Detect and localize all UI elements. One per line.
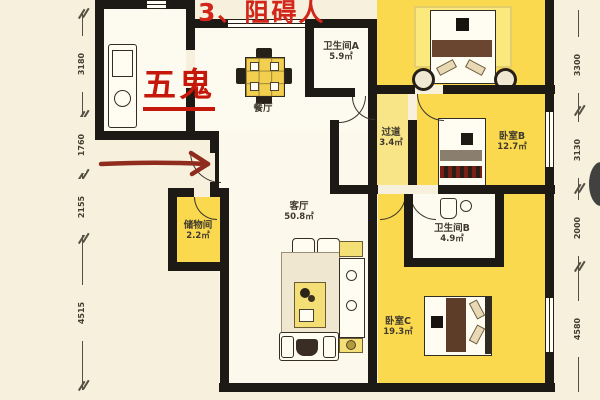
dining-plate (250, 82, 259, 91)
room-area: 12.7㎡ (486, 143, 538, 153)
living-plant-leaf (308, 295, 315, 302)
bath-b-toilet (440, 198, 457, 219)
bedroom-b-wardrobe-shelf (440, 150, 482, 161)
bedroom-a-bed-tv (456, 18, 469, 31)
bedroom-a-bed-blanket (432, 40, 492, 57)
dimension-value: 3300 (574, 37, 582, 93)
dimension-value: 4515 (78, 285, 86, 341)
living-sofa-arm (281, 336, 294, 358)
room-label-living: 客厅 50.8㎡ (272, 202, 326, 223)
kitchen-burner (114, 90, 131, 107)
room-label-corridor: 过道 3.4㎡ (369, 128, 413, 149)
wall (404, 194, 413, 267)
kitchen-window (147, 0, 166, 9)
dimension-value: 3180 (78, 36, 86, 92)
wall (186, 0, 195, 50)
room-area: 4.9㎡ (424, 235, 480, 245)
wall (438, 185, 555, 194)
dimension-value: 2000 (574, 200, 582, 256)
living-side-table (339, 241, 363, 257)
wall (219, 383, 555, 392)
bath-b-sink (460, 200, 472, 212)
wugui-annotation-text: 五鬼 (143, 58, 215, 111)
kitchen-sink (112, 50, 133, 77)
room-area: 3.4㎡ (369, 139, 413, 149)
wall (330, 120, 339, 185)
room-label-bath-b: 卫生间B 4.9㎡ (424, 224, 480, 245)
room-label-storage: 储物间 2.2㎡ (174, 221, 222, 242)
bedroom-b-dresser (440, 166, 482, 178)
room-area: 5.9㎡ (314, 53, 368, 63)
dimension-value: 3130 (574, 122, 582, 178)
bedroom-c-bed-blanket (446, 298, 466, 352)
wall (404, 258, 504, 267)
living-sofa-seat (296, 339, 318, 356)
room-label-bedroom-b: 卧室B 12.7㎡ (486, 132, 538, 153)
room-area: 50.8㎡ (272, 213, 326, 223)
bedroom-a-nightstand (412, 68, 435, 91)
living-sofa-arm (323, 336, 336, 358)
bedroom-b-wardrobe-tv (461, 133, 473, 145)
red-arrow-icon (95, 148, 223, 182)
room-name: 餐厅 (240, 104, 286, 115)
dimension-value: 2155 (78, 179, 86, 235)
dimension-value: 1760 (78, 117, 86, 173)
wall (95, 0, 104, 140)
living-cabinet-knob (346, 300, 357, 311)
living-cabinet-knob (346, 270, 357, 281)
room-label-bedroom-c: 卧室C 19.3㎡ (372, 317, 424, 338)
edge-artifact (589, 162, 600, 206)
wall (443, 85, 555, 94)
wall (330, 185, 378, 194)
wall (377, 85, 415, 94)
room-area: 2.2㎡ (174, 232, 222, 242)
wall (220, 188, 229, 388)
dimension-value: 4580 (574, 301, 582, 357)
dining-plate (270, 62, 279, 71)
bedroom-c-bed-tv (431, 316, 443, 328)
bedroom-c-window (545, 298, 554, 352)
dining-plate (270, 82, 279, 91)
wall (305, 19, 314, 97)
room-label-bath-a: 卫生间A 5.9㎡ (314, 42, 368, 63)
room-label-dining: 餐厅 (240, 104, 286, 115)
room-area: 19.3㎡ (372, 328, 424, 338)
bedroom-c-headboard (485, 296, 491, 354)
living-art-frame (299, 309, 314, 322)
bedroom-b-window (545, 112, 554, 167)
dining-plate (250, 62, 259, 71)
floor-plan-canvas: 卫生间A 5.9㎡ 餐厅 过道 3.4㎡ 卧室B 12.7㎡ 卫生间B 4.9㎡… (0, 0, 600, 400)
wall (95, 131, 219, 140)
wall (495, 194, 504, 267)
living-side-table-bowl (346, 340, 356, 350)
top-annotation-text: 3、阻碍人 (198, 0, 325, 29)
